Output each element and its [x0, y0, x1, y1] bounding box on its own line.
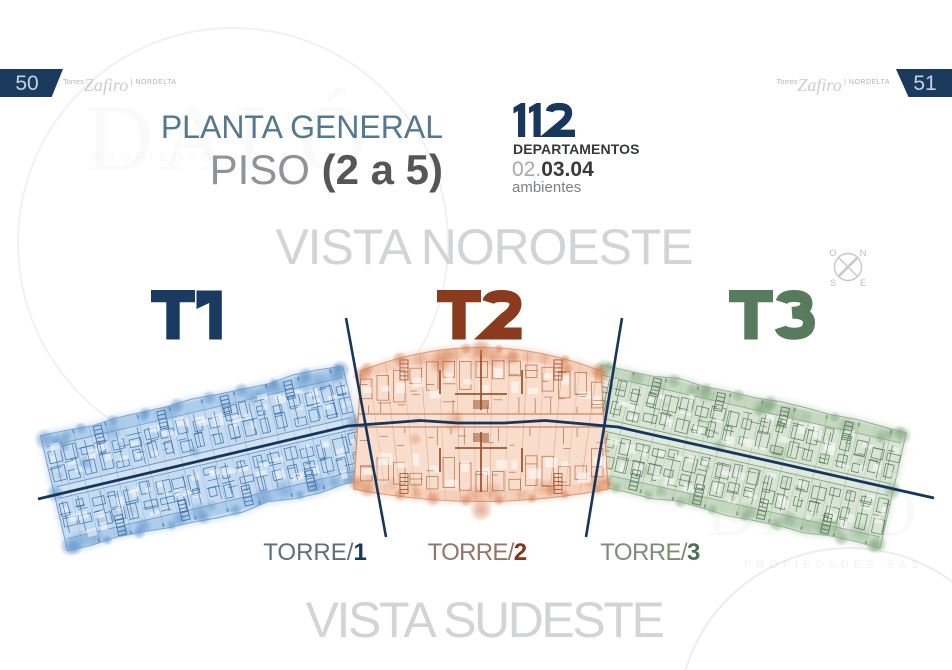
svg-text:S: S	[830, 278, 836, 289]
svg-text:E: E	[860, 278, 866, 289]
svg-text:PROPIEDADES SAS: PROPIEDADES SAS	[744, 559, 924, 571]
